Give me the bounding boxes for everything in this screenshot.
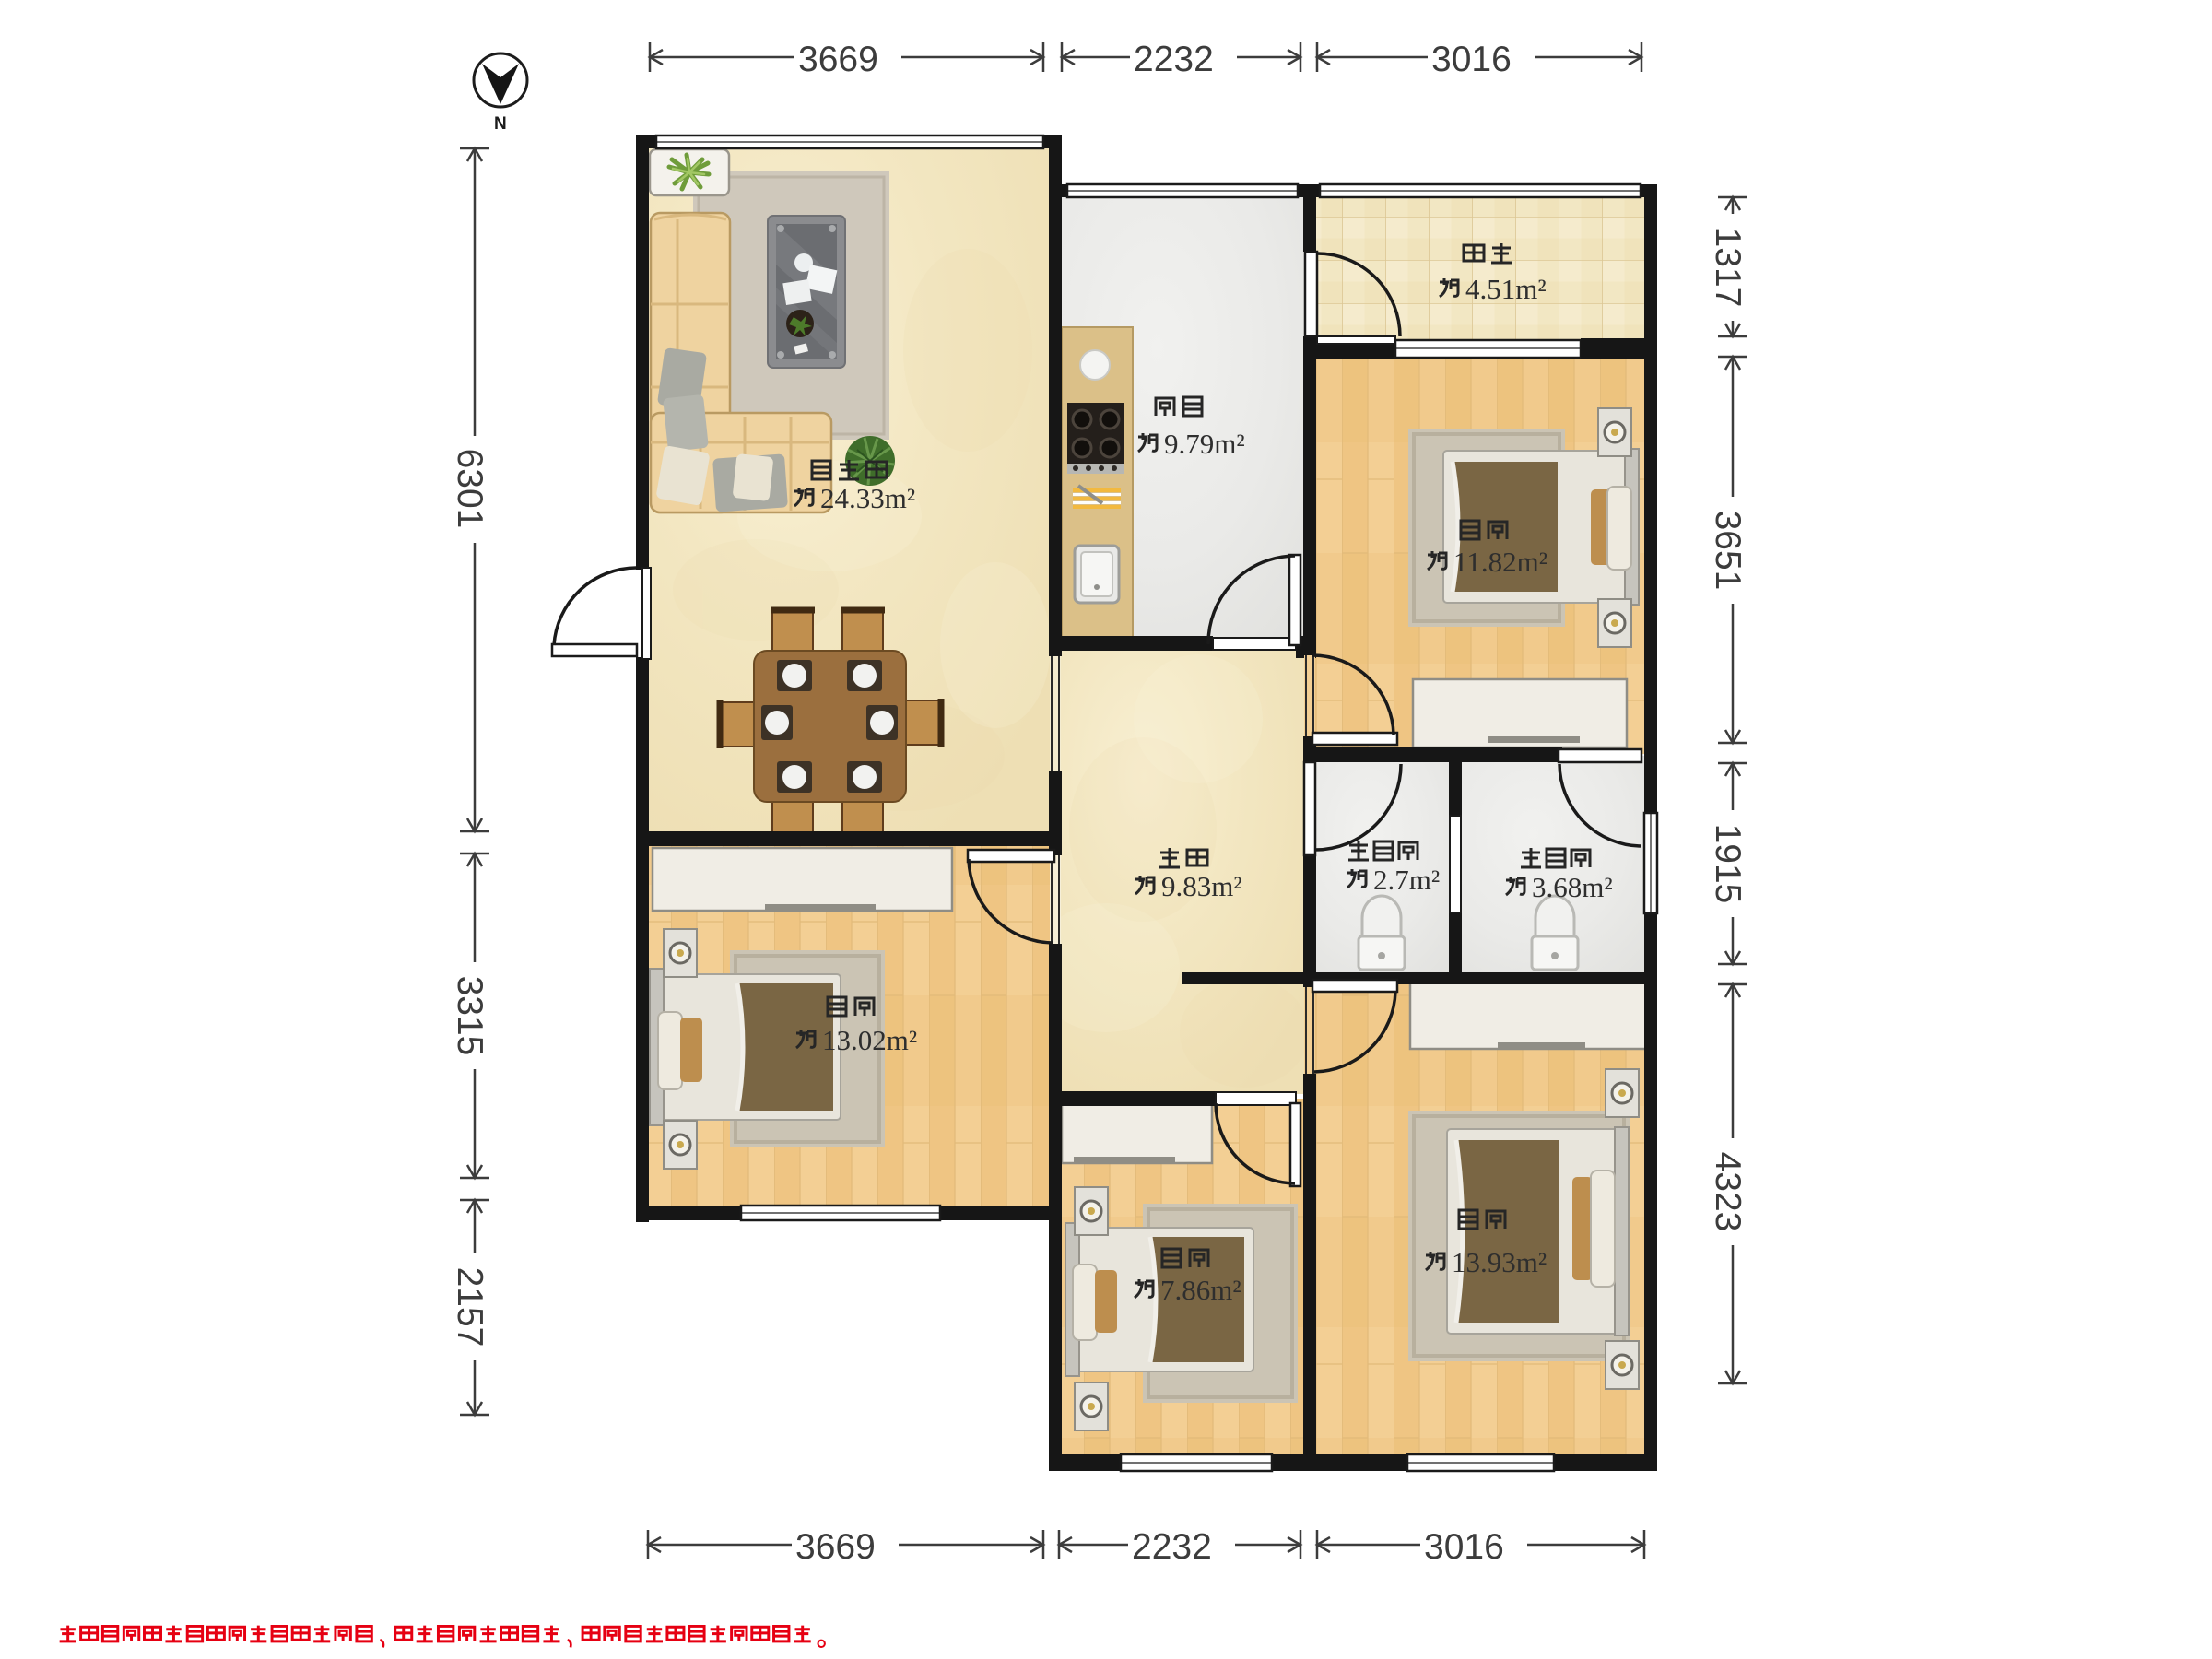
svg-text:3.68m²: 3.68m² <box>1532 871 1613 903</box>
svg-text:2.7m²: 2.7m² <box>1373 864 1440 896</box>
svg-text:3669: 3669 <box>795 1527 876 1567</box>
svg-text:13.93m²: 13.93m² <box>1452 1246 1547 1278</box>
svg-text:2232: 2232 <box>1134 40 1214 79</box>
svg-text:1317: 1317 <box>1708 228 1747 308</box>
svg-text:N: N <box>494 114 507 134</box>
svg-text:13.02m²: 13.02m² <box>822 1024 917 1056</box>
svg-text:9.79m²: 9.79m² <box>1164 428 1245 460</box>
svg-text:6301: 6301 <box>450 449 489 529</box>
svg-text:2232: 2232 <box>1132 1527 1212 1567</box>
svg-text:2157: 2157 <box>450 1267 489 1347</box>
svg-text:1915: 1915 <box>1708 824 1747 904</box>
svg-text:3651: 3651 <box>1708 511 1747 591</box>
svg-text:4323: 4323 <box>1708 1152 1747 1232</box>
svg-text:11.82m²: 11.82m² <box>1453 546 1547 578</box>
svg-text:3315: 3315 <box>450 976 489 1056</box>
svg-text:9.83m²: 9.83m² <box>1161 870 1242 902</box>
svg-text:3016: 3016 <box>1424 1527 1504 1567</box>
svg-text:3669: 3669 <box>798 40 878 79</box>
svg-text:3016: 3016 <box>1431 40 1512 79</box>
svg-text:7.86m²: 7.86m² <box>1160 1274 1241 1306</box>
svg-text:4.51m²: 4.51m² <box>1465 273 1547 305</box>
svg-text:24.33m²: 24.33m² <box>820 482 915 514</box>
